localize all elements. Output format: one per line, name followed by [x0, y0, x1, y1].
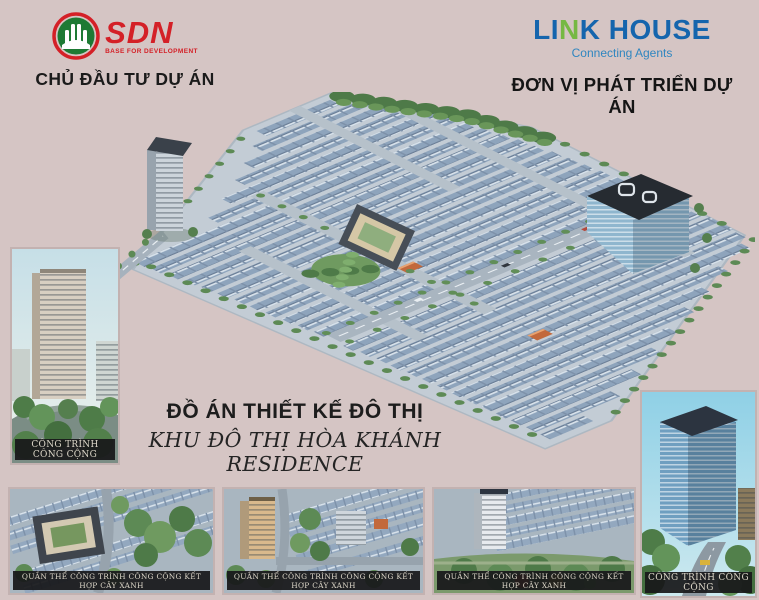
linkhouse-logo-li: LI — [533, 14, 559, 45]
page-subtitle: KHU ĐÔ THỊ HÒA KHÁNH RESIDENCE — [128, 428, 462, 476]
sdn-logo-text: SDN — [105, 17, 173, 48]
public-building-photo-left: CÔNG TRÌNH CÔNG CỘNG — [10, 247, 120, 465]
title-block: ĐỒ ÁN THIẾT KẾ ĐÔ THỊ KHU ĐÔ THỊ HÒA KHÁ… — [128, 400, 462, 476]
right-photo-scene — [642, 392, 755, 596]
aerial-photo-3-caption: QUẦN THỂ CÔNG TRÌNH CÔNG CỘNG KẾT HỢP CÂ… — [437, 571, 631, 590]
page-title: ĐỒ ÁN THIẾT KẾ ĐÔ THỊ — [128, 400, 462, 424]
courtyard-block — [32, 506, 105, 564]
right-photo-caption: CÔNG TRÌNH CÔNG CỘNG — [645, 572, 752, 593]
developer-block: SDN BASE FOR DEVELOPMENT CHỦ ĐẦU TƯ DỰ Á… — [28, 12, 222, 90]
public-building-photo-right: CÔNG TRÌNH CÔNG CỘNG — [640, 390, 757, 598]
linkhouse-logo-n: N — [559, 14, 580, 45]
aerial-photo-1-caption: QUẦN THỂ CÔNG TRÌNH CÔNG CỘNG KẾT HỢP CÂ… — [13, 571, 210, 590]
poster-page: SDN BASE FOR DEVELOPMENT CHỦ ĐẦU TƯ DỰ Á… — [0, 0, 759, 600]
linkhouse-tagline: Connecting Agents — [496, 46, 748, 60]
linkhouse-logo: LINK HOUSE — [496, 16, 748, 44]
left-photo-caption: CÔNG TRÌNH CÔNG CỘNG — [15, 439, 115, 460]
sdn-logo-icon — [52, 12, 100, 60]
developer-label: CHỦ ĐẦU TƯ DỰ ÁN — [28, 69, 222, 90]
left-photo-scene — [12, 249, 118, 463]
aerial-photo-2: QUẦN THỂ CÔNG TRÌNH CÔNG CỘNG KẾT HỢP CÂ… — [222, 487, 425, 595]
sdn-logo: SDN BASE FOR DEVELOPMENT — [28, 12, 222, 60]
sdn-logo-tagline: BASE FOR DEVELOPMENT — [105, 49, 198, 56]
aerial-photo-1: QUẦN THỂ CÔNG TRÌNH CÔNG CỘNG KẾT HỢP CÂ… — [8, 487, 215, 595]
aerial-photo-3: QUẦN THỂ CÔNG TRÌNH CÔNG CỘNG KẾT HỢP CÂ… — [432, 487, 636, 595]
linkhouse-logo-khouse: K HOUSE — [580, 14, 711, 45]
aerial-photo-2-caption: QUẦN THỂ CÔNG TRÌNH CÔNG CỘNG KẾT HỢP CÂ… — [227, 571, 420, 590]
